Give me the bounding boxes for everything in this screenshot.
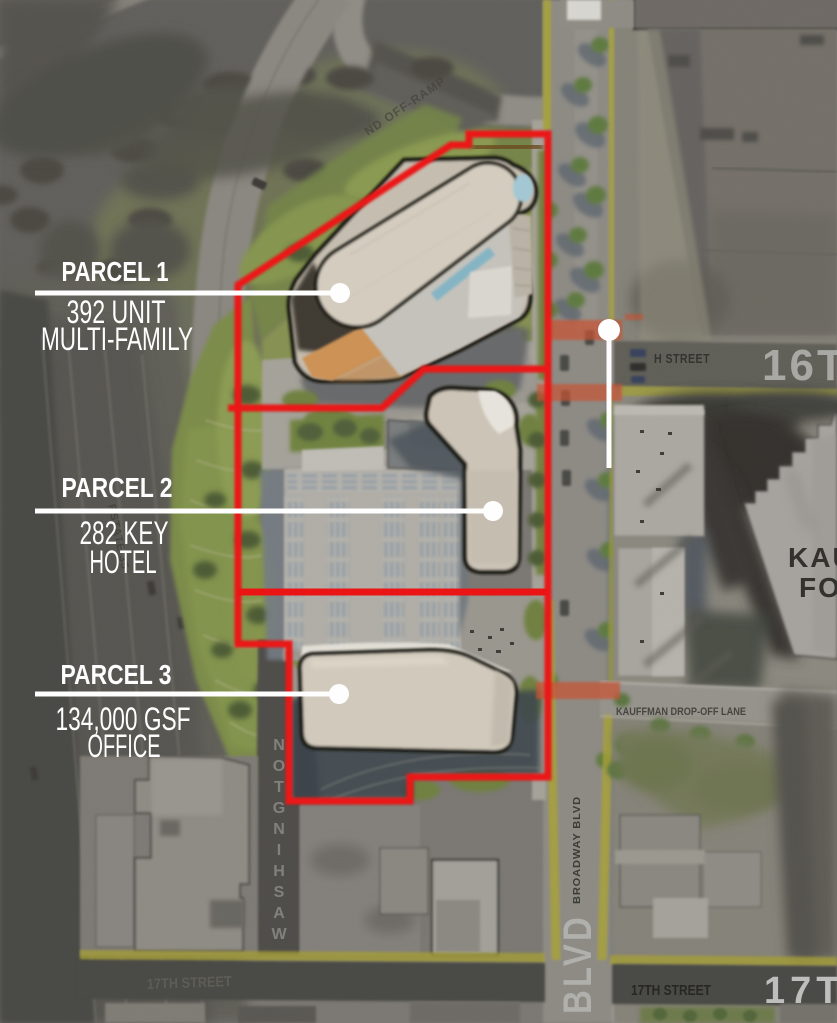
svg-text:N: N [273,821,285,838]
svg-text:17TH: 17TH [764,970,837,1012]
svg-text:PARCEL 2: PARCEL 2 [62,472,173,503]
svg-text:I: I [277,842,281,859]
svg-text:HOTEL: HOTEL [90,544,157,580]
svg-text:S: S [274,884,285,901]
svg-text:KAUFFMAN DROP-OFF LANE: KAUFFMAN DROP-OFF LANE [616,706,746,718]
svg-text:16TH: 16TH [762,341,837,390]
svg-text:H STREET: H STREET [654,352,710,366]
svg-text:O: O [273,758,285,775]
svg-text:OFFICE: OFFICE [88,728,161,764]
svg-text:17TH STREET: 17TH STREET [631,982,711,999]
svg-text:G: G [273,800,285,817]
svg-text:H: H [273,863,285,880]
svg-text:A: A [273,905,285,922]
svg-text:T: T [274,779,284,796]
svg-text:N: N [273,737,285,754]
svg-text:PARCEL 3: PARCEL 3 [61,659,172,690]
svg-text:BROADWAY BLVD: BROADWAY BLVD [571,796,583,904]
svg-text:KAUF: KAUF [788,542,837,573]
svg-text:PARCEL 1: PARCEL 1 [62,256,169,287]
svg-text:MULTI-FAMILY: MULTI-FAMILY [41,321,193,357]
svg-text:FOU: FOU [799,572,837,603]
svg-text:BLVD: BLVD [556,914,600,1014]
svg-text:17TH STREET: 17TH STREET [147,974,233,993]
svg-text:W: W [271,926,287,943]
